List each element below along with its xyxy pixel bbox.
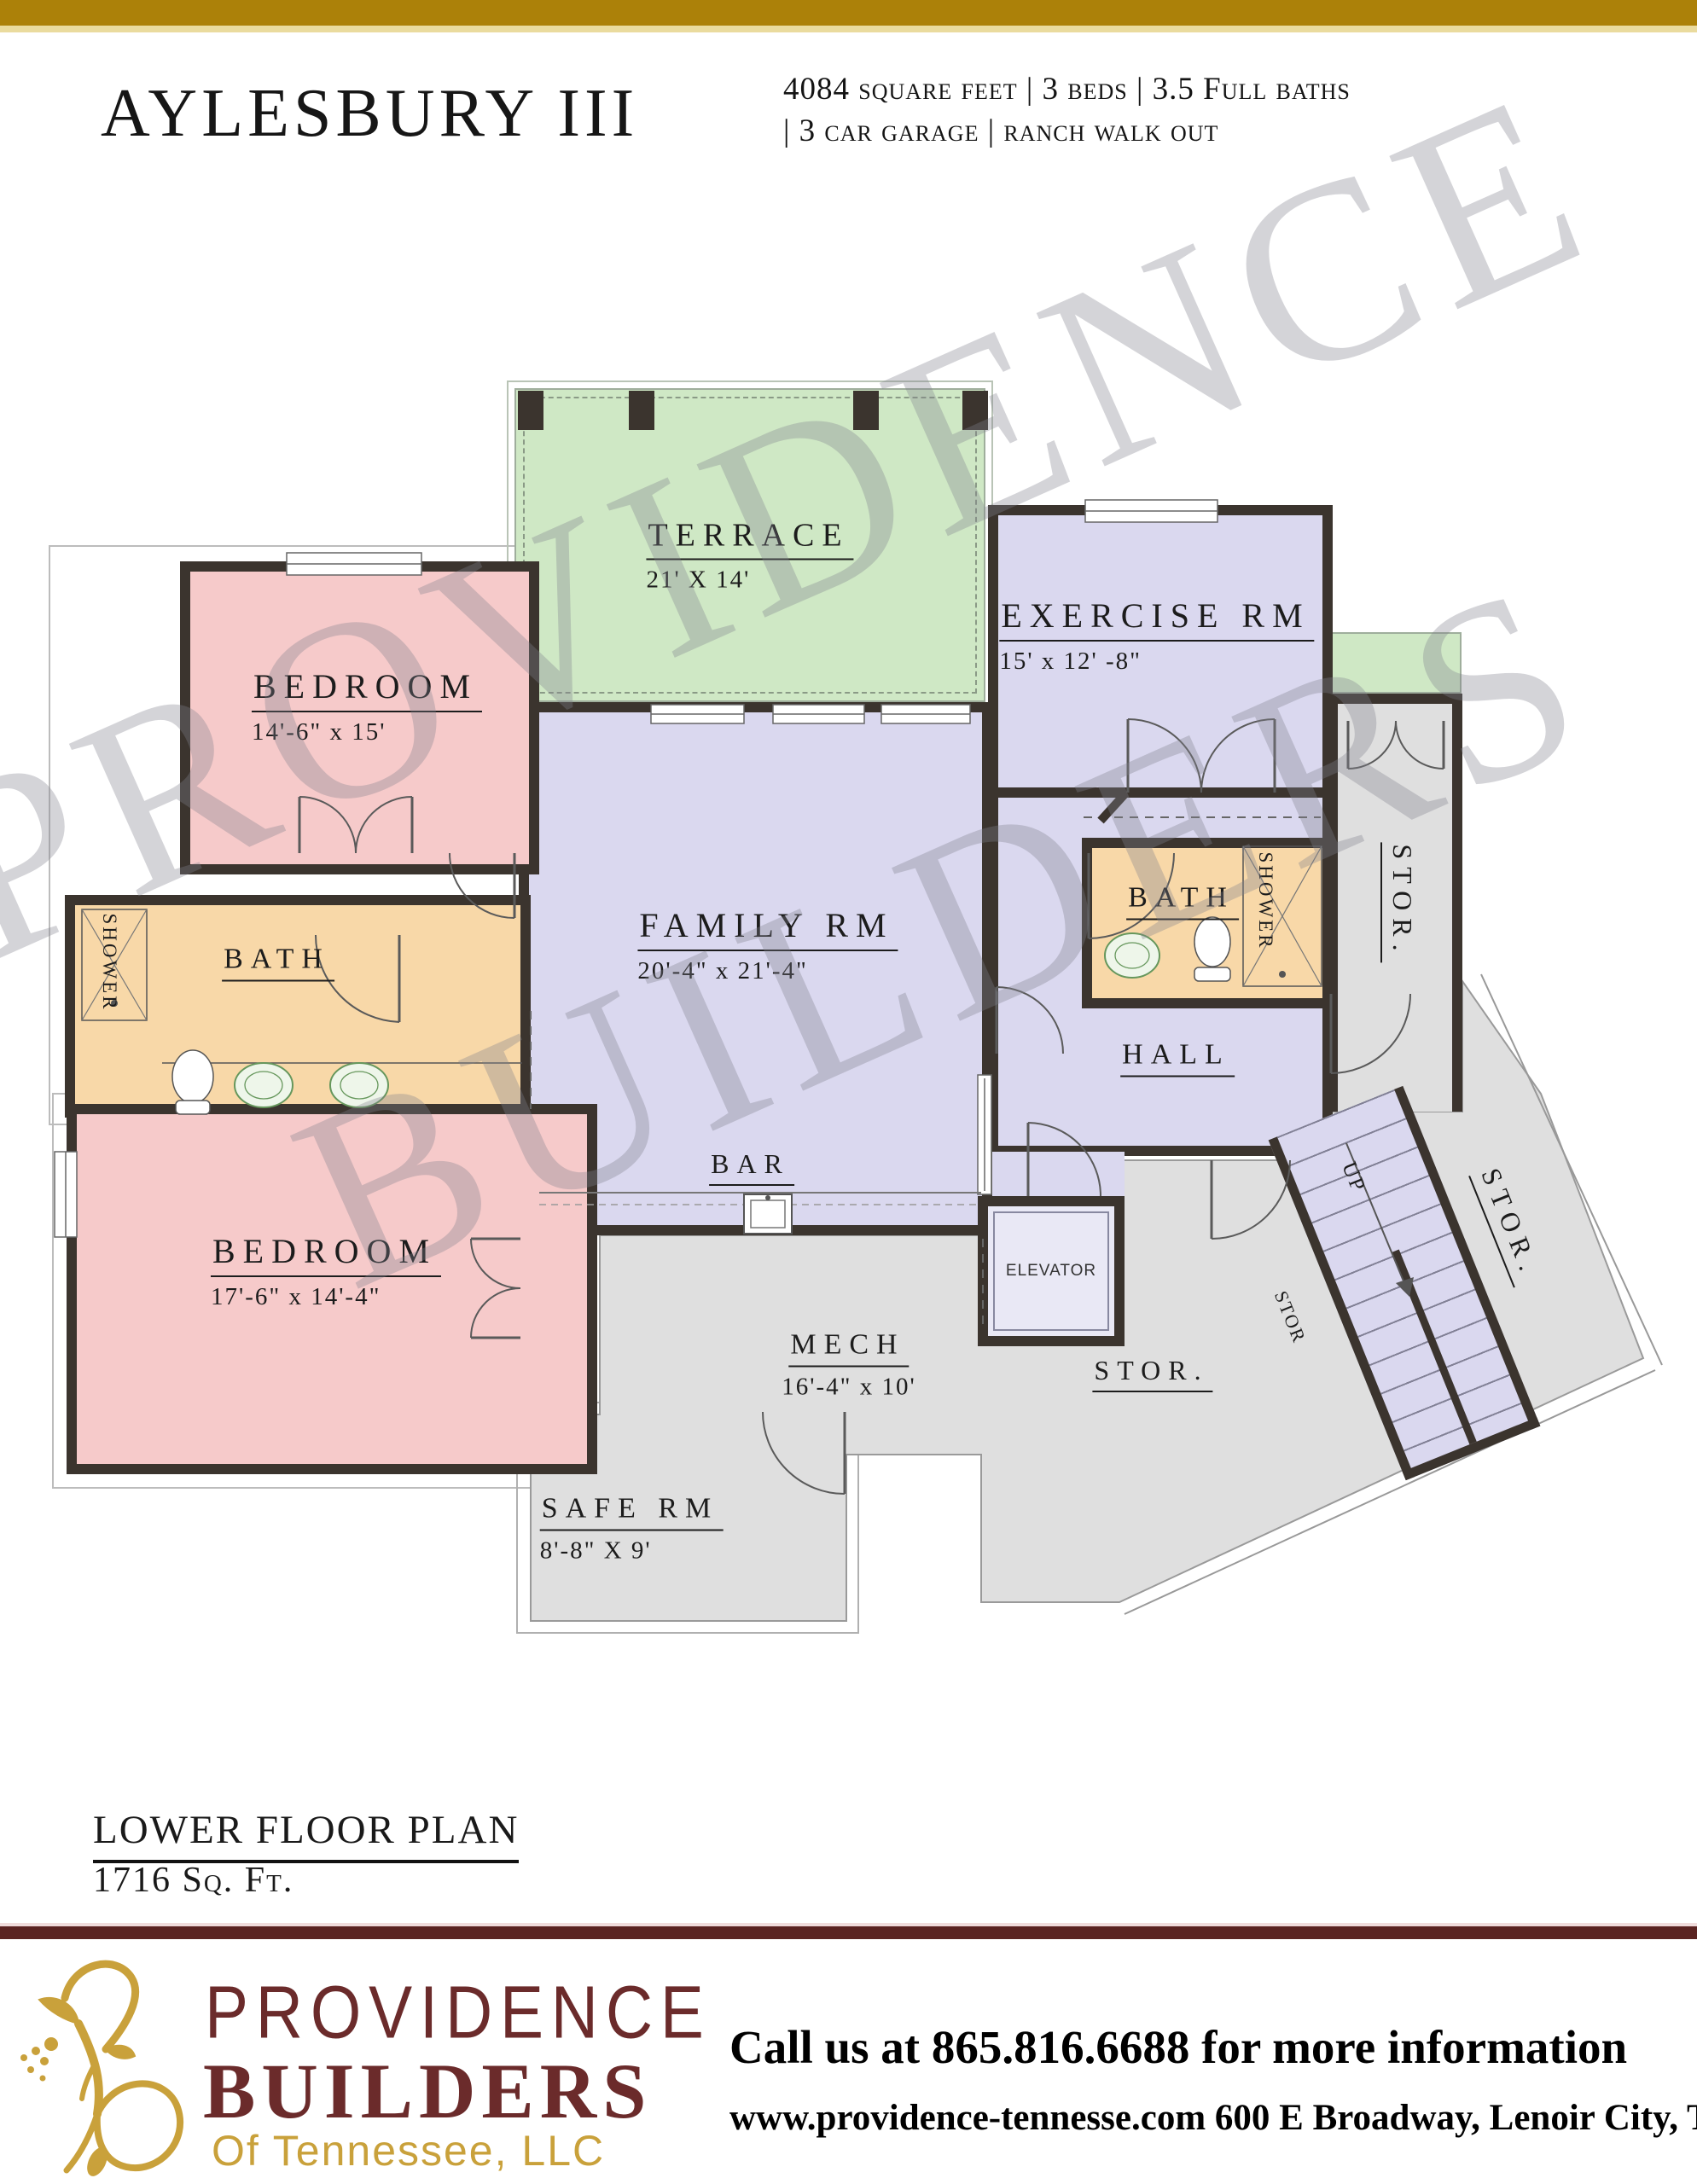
builder-logo-flourish-icon (14, 1947, 201, 2184)
bath-left-room (65, 895, 531, 1118)
elevator-cab: ELEVATOR (993, 1211, 1109, 1331)
bath-right-label: BATH (1126, 882, 1239, 921)
plan-specs: 4084 square feet | 3 beds | 3.5 Full bat… (783, 68, 1351, 152)
bath-right-room (1082, 838, 1333, 1008)
footer-divider-bar (0, 1926, 1697, 1939)
terrace-column-post (962, 391, 988, 430)
top-gold-bar-accent (0, 26, 1697, 32)
footer-phone-line: Call us at 865.816.6688 for more informa… (729, 2020, 1627, 2074)
page: AYLESBURY III 4084 square feet | 3 beds … (0, 0, 1697, 2184)
specs-line-2: | 3 car garage | ranch walk out (783, 110, 1351, 152)
terrace-column-post (853, 391, 879, 430)
top-gold-bar (0, 0, 1697, 26)
caption-square-footage: 1716 Sq. Ft. (93, 1860, 293, 1901)
mech-label: MECH 16'-4" x 10' (782, 1329, 915, 1402)
terrace-column-post (518, 391, 543, 430)
caption-title: LOWER FLOOR PLAN (93, 1807, 519, 1863)
staircase (1269, 1086, 1541, 1480)
stair-divider-wall (1392, 1249, 1476, 1444)
bar-label: BAR (709, 1148, 794, 1186)
plan-title: AYLESBURY III (101, 75, 638, 153)
deck-edge-line-outer (1481, 974, 1662, 1365)
shower-left-label: SHOWER (98, 913, 120, 1011)
storage-center-label: STOR. (1092, 1355, 1212, 1392)
hall-extension (988, 1152, 1125, 1203)
hall-label: HALL (1120, 1039, 1235, 1077)
storage-under-stairs-label: STOR (1270, 1288, 1311, 1347)
exercise-label: EXERCISE RM 15' x 12' -8" (999, 595, 1314, 676)
elevator-label: ELEVATOR (1006, 1262, 1096, 1281)
bedroom-lower-label: BEDROOM 17'-6" x 14'-4" (211, 1231, 441, 1311)
footer-address-line: www.providence-tennesse.com 600 E Broadw… (729, 2097, 1697, 2139)
brand-name-providence: PROVIDENCE (205, 1969, 712, 2056)
terrace-patch-right (1328, 632, 1462, 694)
family-label: FAMILY RM 20'-4" x 21'-4" (637, 905, 898, 985)
terrace-column-post (629, 391, 654, 430)
shower-right-label: SHOWER (1254, 851, 1276, 950)
brand-name-tennessee: Of Tennessee, LLC (212, 2126, 605, 2175)
safe-room-label: SAFE RM 8'-8" X 9' (540, 1493, 724, 1565)
specs-line-1: 4084 square feet | 3 beds | 3.5 Full bat… (783, 68, 1351, 110)
storage-vertical-label: STOR. (1380, 842, 1418, 962)
storage-diagonal-label: STOR. (1468, 1162, 1549, 1287)
elevator-shaft: ELEVATOR (978, 1196, 1125, 1346)
terrace-label: TERRACE 21' X 14' (646, 517, 853, 595)
bedroom-upper-label: BEDROOM 14'-6" x 15' (252, 666, 482, 746)
bath-left-label: BATH (222, 944, 334, 982)
brand-name-builders: BUILDERS (203, 2046, 652, 2136)
